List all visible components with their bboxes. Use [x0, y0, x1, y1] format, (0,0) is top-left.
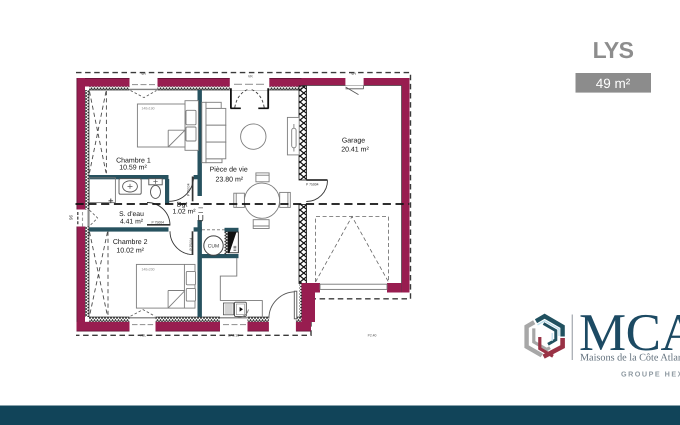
svg-text:P 75004: P 75004: [152, 220, 165, 224]
svg-text:GROUPE HEXAÔM: GROUPE HEXAÔM: [621, 369, 680, 378]
svg-text:1.02 m²: 1.02 m²: [172, 209, 196, 216]
svg-text:96: 96: [69, 214, 74, 220]
svg-text:VH: VH: [351, 72, 356, 76]
svg-text:140x200: 140x200: [142, 268, 155, 272]
svg-text:Chambre 2: Chambre 2: [113, 238, 148, 246]
svg-text:Garage: Garage: [342, 138, 365, 145]
svg-text:Maisons de la Côte Atlantique: Maisons de la Côte Atlantique: [580, 353, 680, 364]
svg-text:140x190: 140x190: [142, 107, 155, 111]
svg-text:VBL: VBL: [140, 334, 147, 338]
svg-text:LYS: LYS: [593, 37, 634, 63]
svg-text:4.41 m²: 4.41 m²: [120, 218, 144, 225]
svg-text:23.80 m²: 23.80 m²: [215, 177, 243, 184]
svg-text:DF2.10: DF2.10: [228, 334, 239, 338]
svg-text:VR: VR: [248, 75, 253, 79]
svg-text:Pièce de vie: Pièce de vie: [210, 165, 248, 173]
svg-text:Dgt: Dgt: [177, 202, 188, 209]
svg-text:10.02 m²: 10.02 m²: [116, 247, 144, 254]
svg-text:P 75004: P 75004: [187, 183, 191, 196]
svg-text:P 75004: P 75004: [306, 183, 319, 187]
svg-text:S. d'eau: S. d'eau: [119, 211, 144, 218]
svg-text:20.41 m²: 20.41 m²: [341, 147, 369, 154]
svg-text:10.59 m²: 10.59 m²: [119, 164, 147, 171]
svg-text:VR: VR: [141, 72, 146, 76]
svg-text:CUM: CUM: [208, 244, 219, 250]
svg-text:49 m²: 49 m²: [596, 76, 631, 91]
svg-text:P 75004: P 75004: [189, 238, 193, 251]
svg-text:P2.40: P2.40: [368, 334, 377, 338]
svg-text:Chambre 1: Chambre 1: [116, 156, 151, 164]
